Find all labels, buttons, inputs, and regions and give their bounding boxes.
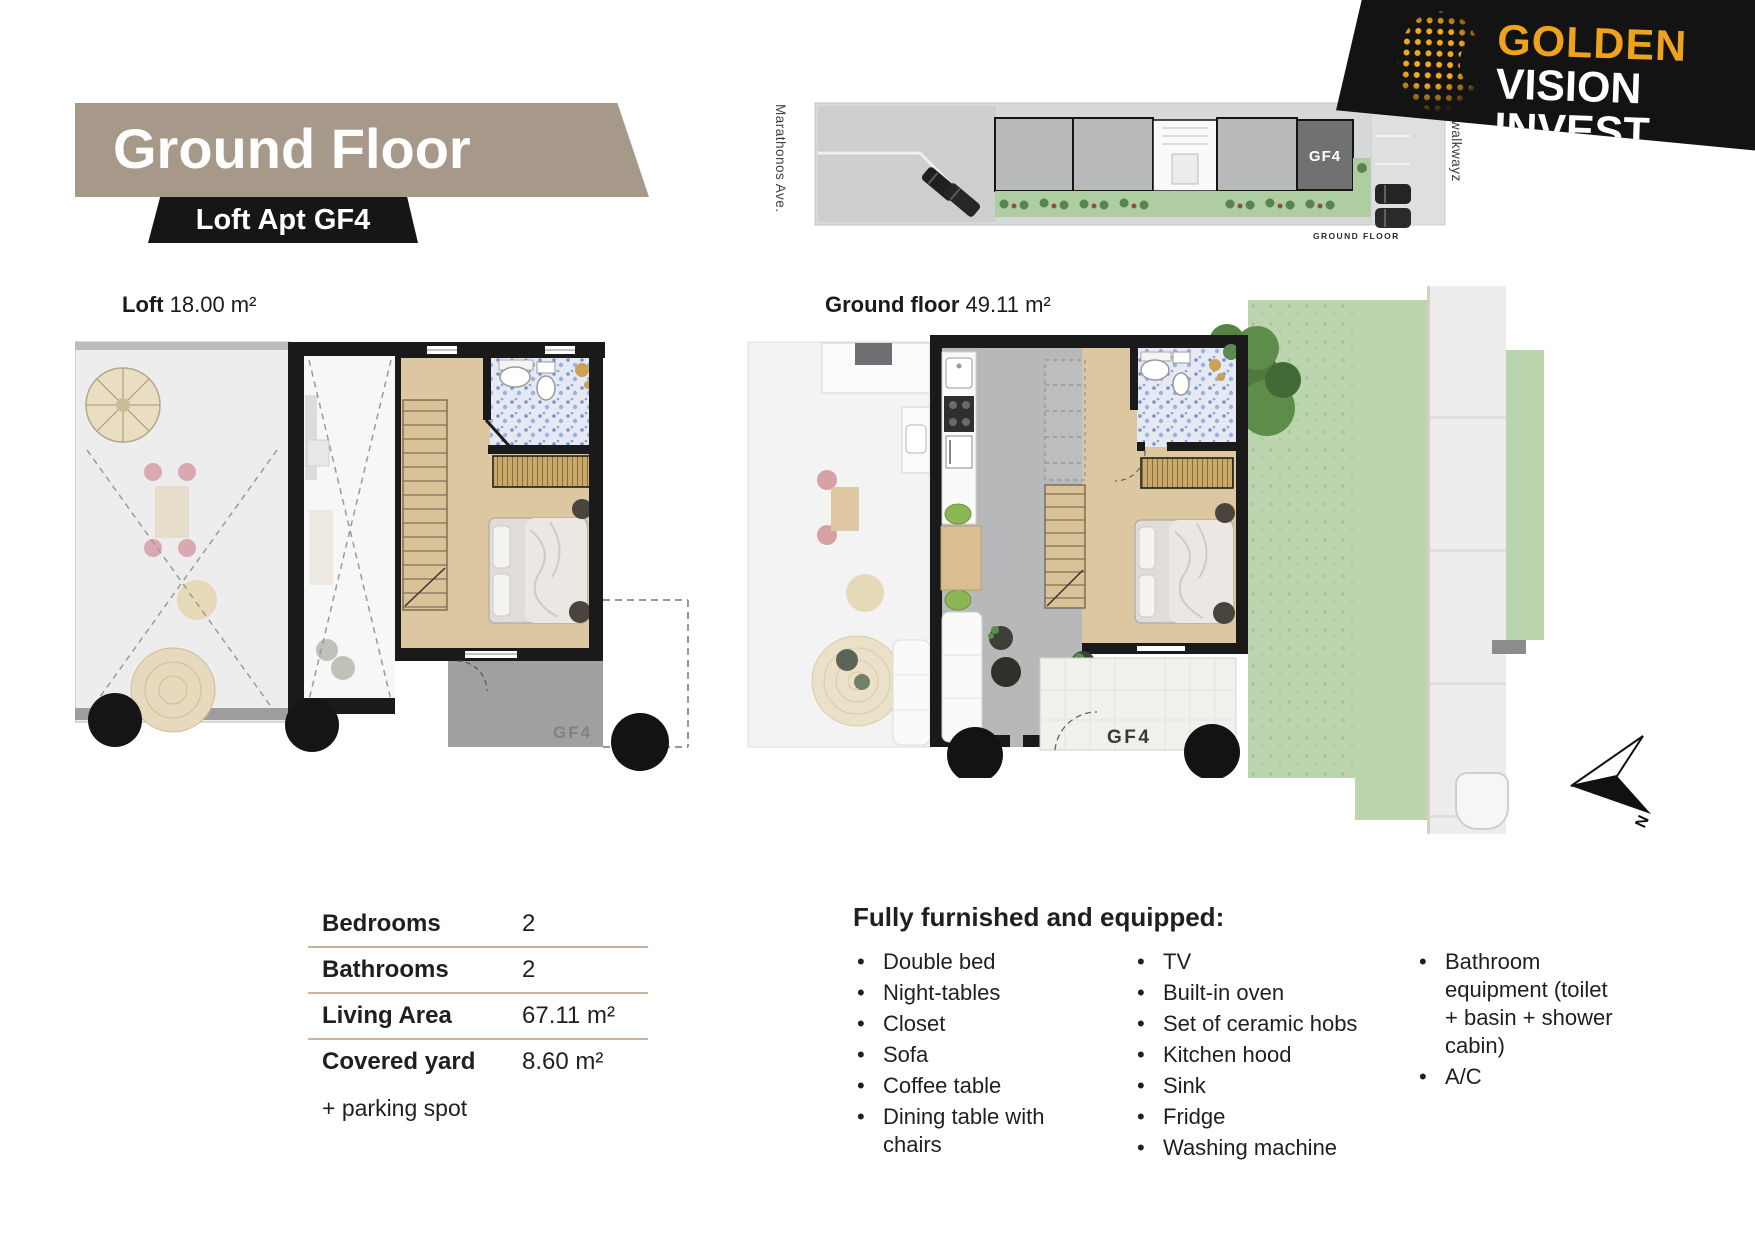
bath-decor [1217,373,1225,381]
list-item: Closet [853,1010,1073,1038]
coffee-table-icon [991,657,1021,687]
bath-decor [575,363,589,377]
spec-label: Covered yard [308,1048,522,1076]
parking-note: + parking spot [322,1095,467,1122]
table-row: Living Area 67.11 m² [308,994,648,1040]
chair-icon [945,504,971,524]
faded-neighbor-unit [748,342,930,747]
walkway-label: walkwayz [1449,120,1464,230]
bathroom [483,358,603,454]
staircase-upper-dashed [1045,360,1085,480]
table-row: Covered yard 8.60 m² [308,1040,648,1084]
staircase [1045,485,1085,608]
golden-sphere-icon [1396,10,1482,113]
street-label: Marathonos Ave. [773,104,788,234]
site-plan: Marathonos Ave. [685,90,1495,255]
round-rug-faded [131,648,215,732]
neighbor-building-edge [1492,640,1526,654]
gf4-unit-highlight: GF4 [1297,120,1353,190]
wardrobe [493,456,600,487]
furnishing-column-3: Bathroom equipment (toilet + basin + sho… [1415,948,1615,1165]
list-item: Double bed [853,948,1073,976]
loft-floor-plan: GF4 [75,300,695,775]
kitchen [942,352,976,524]
site-map: GF4 [810,98,1450,248]
north-arrow-icon: N [1565,728,1665,830]
yard-unit-label: GF4 [553,723,592,742]
faded-neighbor-unit-a [75,342,290,747]
north-label: N [1631,812,1651,830]
night-table-icon [1215,503,1235,523]
spec-label: Bedrooms [308,910,522,938]
furnishing-column-2: TV Built-in oven Set of ceramic hobs Kit… [1133,948,1415,1165]
list-item: Washing machine [1133,1134,1413,1162]
building-row: GF4 [995,118,1353,191]
oven-icon [946,436,972,468]
list-item: Built-in oven [1133,979,1413,1007]
title-banner: Ground Floor [75,103,649,197]
subtitle-banner: Loft Apt GF4 [148,197,418,243]
spec-label: Bathrooms [308,956,522,984]
furnishing-column-1: Double bed Night-tables Closet Sofa Coff… [853,948,1133,1165]
spiral-staircase-icon [86,368,160,442]
plant-icon [836,649,858,671]
specs-table: Bedrooms 2 Bathrooms 2 Living Area 67.11… [308,902,648,1084]
svg-text:GF4: GF4 [1309,148,1341,165]
lawn-strip [1355,300,1427,820]
staircase [403,400,447,610]
night-table-icon [1213,602,1235,624]
driveway [818,106,996,222]
walkway-strip [1427,286,1506,834]
page-title: Ground Floor [75,103,649,195]
car-icon [1375,184,1411,204]
bath-decor [1209,359,1221,371]
spec-value: 67.11 m² [522,1002,615,1030]
table-row: Bedrooms 2 [308,902,648,948]
list-item: TV [1133,948,1413,976]
list-item: A/C [1415,1063,1615,1091]
spec-value: 8.60 m² [522,1048,603,1076]
furnishing-lists: Double bed Night-tables Closet Sofa Coff… [853,948,1643,1165]
wardrobe [1141,458,1233,488]
sink-icon [499,360,533,387]
tree-icon [285,698,339,752]
list-item: Dining table with chairs [853,1103,1073,1159]
furnishing-heading: Fully furnished and equipped: [853,902,1224,933]
plant-icon [854,674,870,690]
armchair-faded [177,580,217,620]
wood-floor [1082,348,1138,650]
car-icon [1375,208,1411,228]
sink-icon [946,358,972,388]
brochure-page: Ground Floor Loft Apt GF4 Marathonos Ave… [0,0,1755,1240]
hob-icon [944,396,974,432]
parking-area [1371,108,1445,228]
party-wall [288,342,304,722]
chair-icon [945,590,971,610]
list-item: Sink [1133,1072,1413,1100]
list-item: Kitchen hood [1133,1041,1413,1069]
lawn-strip [1506,350,1544,640]
parked-vehicle [1455,772,1509,830]
list-item: Set of ceramic hobs [1133,1010,1413,1038]
tree-icon [1184,724,1240,778]
sink-icon [1141,352,1171,380]
tree-icon [611,713,669,771]
night-table-icon [569,601,591,623]
yard-unit-label: GF4 [1107,727,1151,748]
ground-floor-plan: GF4 [745,300,1357,778]
brand-name: GOLDEN VISION INVEST [1493,13,1755,160]
list-item: Fridge [1133,1103,1413,1131]
site-caption: GROUND FLOOR [1313,231,1400,241]
table-row: Bathrooms 2 [308,948,648,994]
tree-icon [88,693,142,747]
spec-value: 2 [522,956,535,984]
toilet-icon [537,362,555,400]
brand-line2: VISION INVEST [1493,63,1755,160]
sofa-faded [893,640,930,745]
armchair-faded [846,574,884,612]
loft-unit [395,342,605,661]
spec-value: 2 [522,910,535,938]
apartment-subtitle: Loft Apt GF4 [148,197,418,243]
spec-label: Living Area [308,1002,522,1030]
sofa [942,612,982,742]
list-item: Coffee table [853,1072,1073,1100]
list-item: Sofa [853,1041,1073,1069]
list-item: Bathroom equipment (toilet + basin + sho… [1415,948,1615,1060]
list-item: Night-tables [853,979,1073,1007]
